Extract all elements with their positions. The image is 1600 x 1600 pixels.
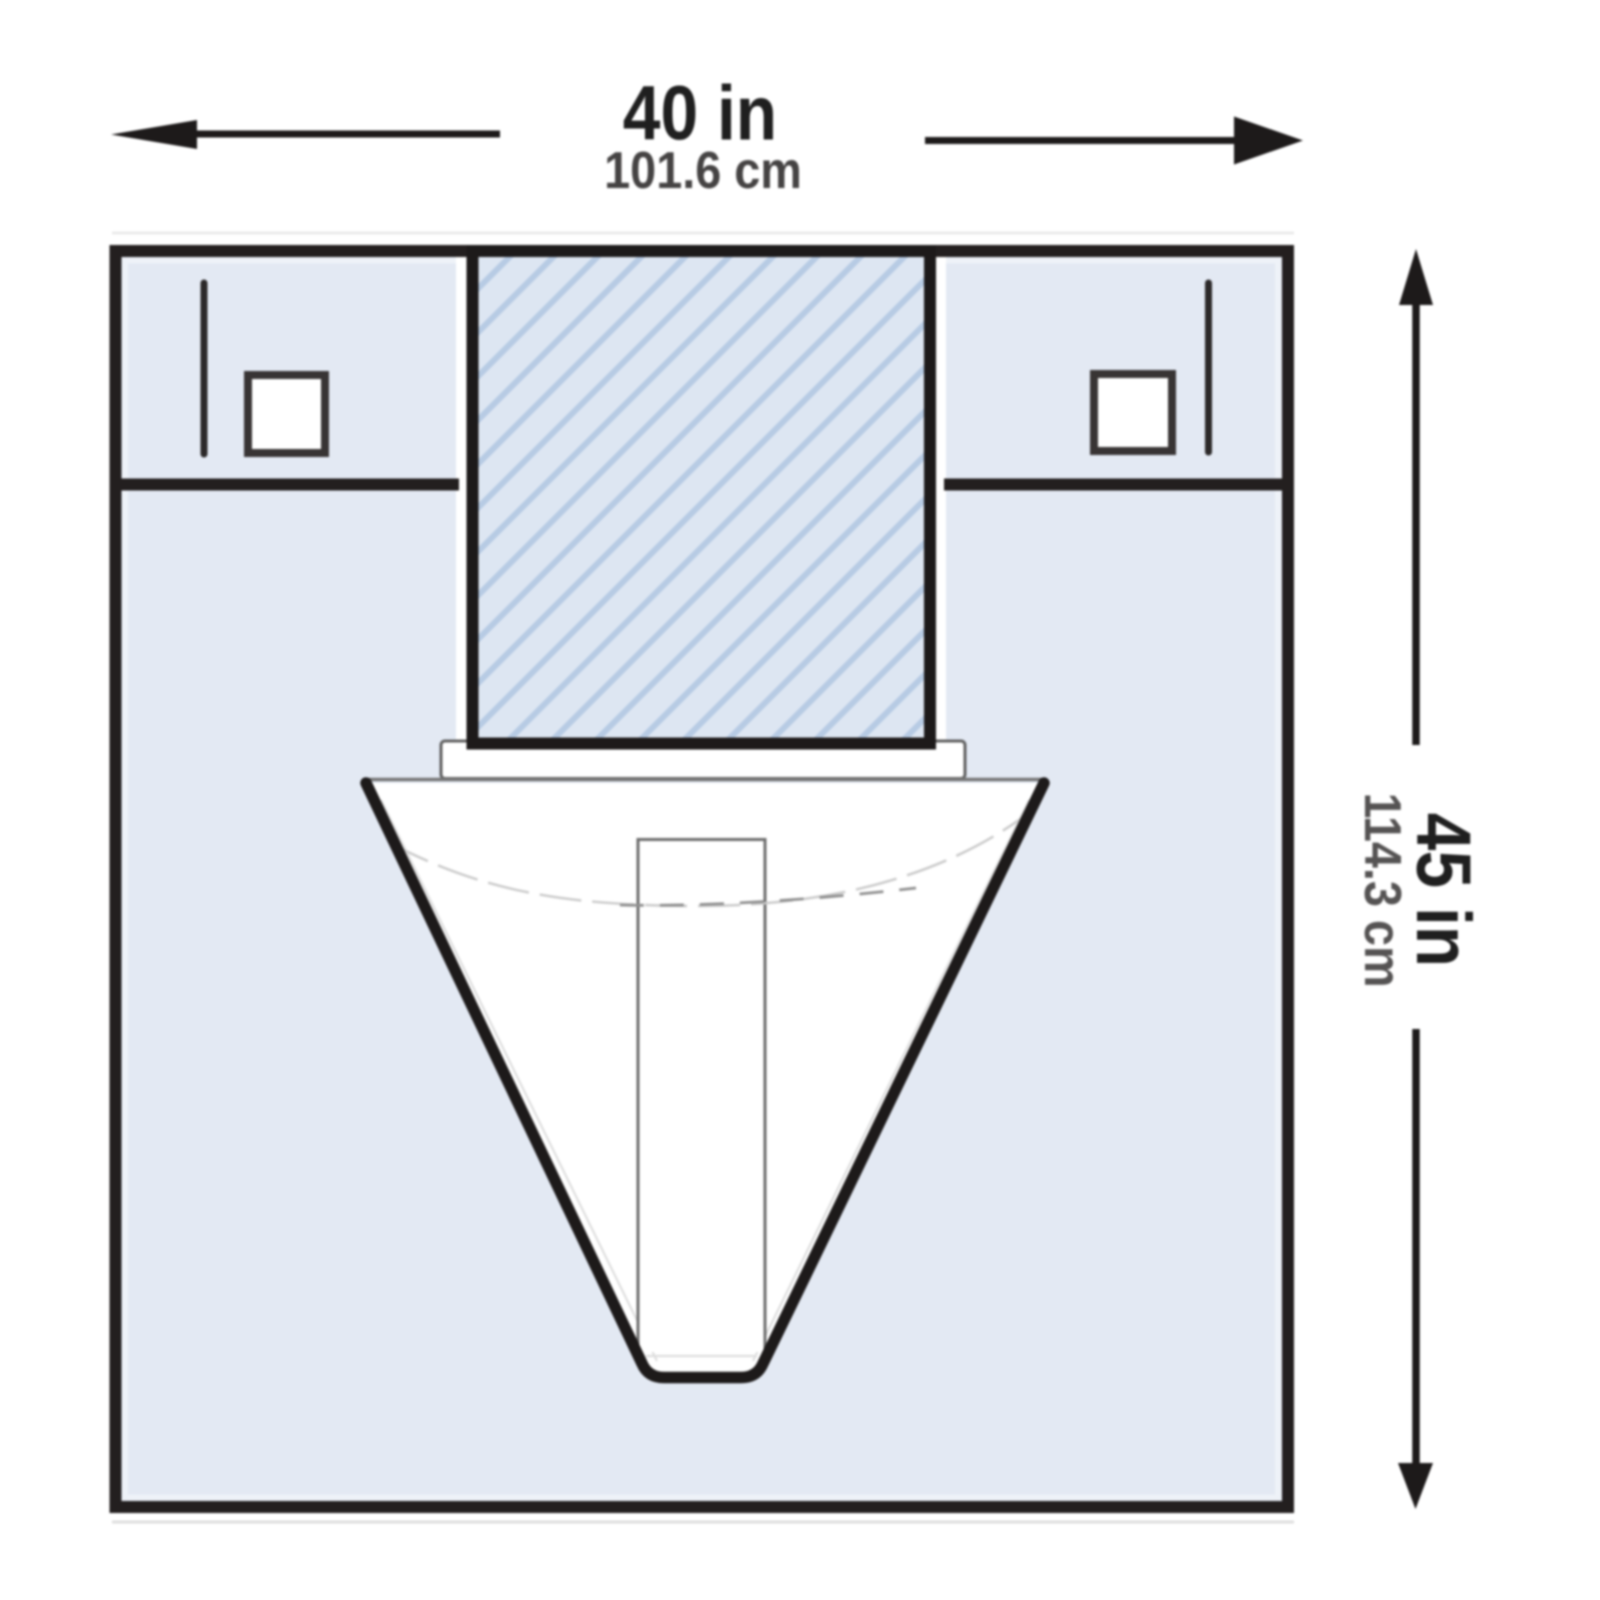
- svg-text:45 in: 45 in: [1400, 813, 1486, 967]
- svg-text:101.6 cm: 101.6 cm: [604, 142, 802, 200]
- svg-text:114.3 cm: 114.3 cm: [1353, 792, 1411, 987]
